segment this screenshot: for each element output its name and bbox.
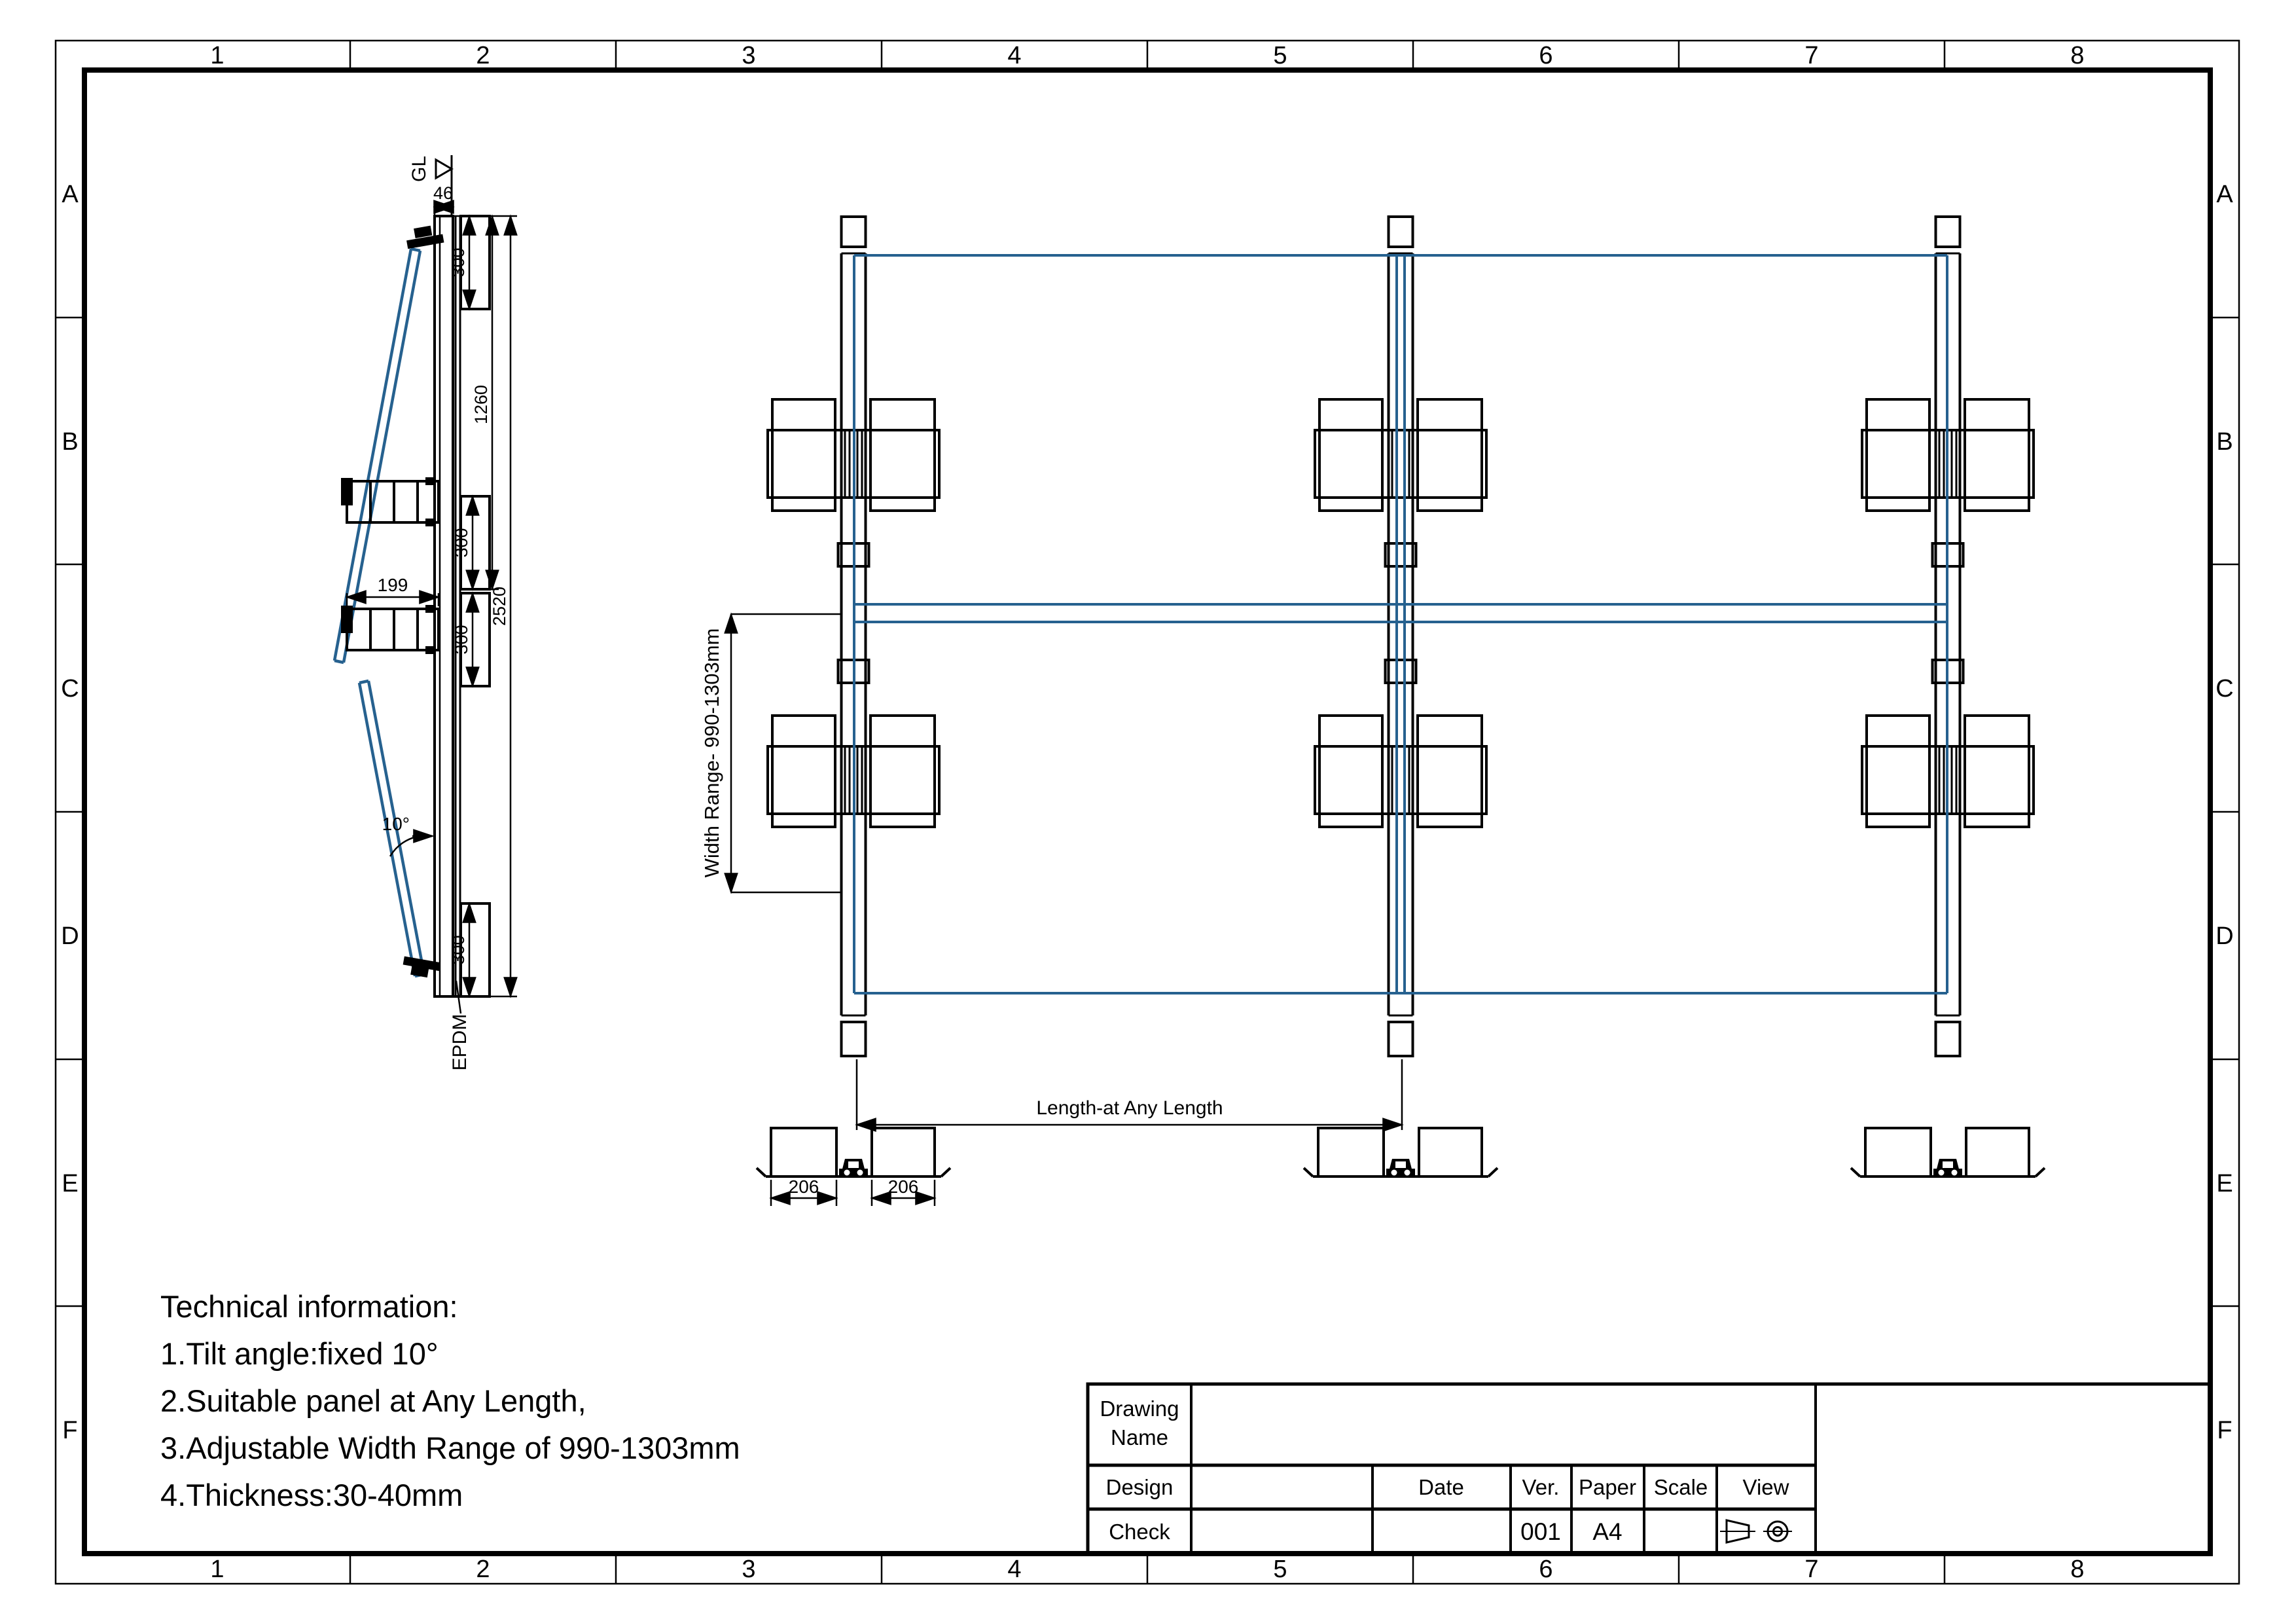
view-label: View bbox=[1743, 1475, 1789, 1499]
tech-info-line: 3.Adjustable Width Range of 990-1303mm bbox=[160, 1431, 740, 1465]
grid-row-label: E bbox=[62, 1170, 78, 1197]
paper-value: A4 bbox=[1592, 1518, 1622, 1545]
dim-199: 199 bbox=[378, 575, 408, 595]
grid-col-label: 6 bbox=[1539, 1556, 1552, 1583]
grid-col-label: 6 bbox=[1539, 42, 1552, 69]
grid-col-label: 4 bbox=[1007, 42, 1021, 69]
grid-col-label: 5 bbox=[1273, 42, 1287, 69]
support-bracket-lower bbox=[347, 609, 439, 650]
grid-row-label: F bbox=[2217, 1417, 2232, 1444]
tech-info-line: 4.Thickness:30-40mm bbox=[160, 1478, 463, 1512]
grid-col-label: 3 bbox=[742, 1556, 755, 1583]
grid-col-label: 2 bbox=[476, 42, 490, 69]
dim-46: 46 bbox=[433, 183, 453, 203]
tech-info-title: Technical information: bbox=[160, 1289, 458, 1324]
dim-206: 206 bbox=[789, 1176, 819, 1197]
grid-row-label: F bbox=[62, 1417, 77, 1444]
grid-col-label: 1 bbox=[210, 42, 224, 69]
technical-information: Technical information: 1.Tilt angle:fixe… bbox=[160, 1289, 740, 1512]
grid-col-label: 3 bbox=[742, 42, 755, 69]
grid-row-label: A bbox=[2216, 181, 2233, 208]
grid-col-label: 5 bbox=[1273, 1556, 1287, 1583]
paper-label: Paper bbox=[1579, 1475, 1636, 1499]
cad-canvas: 1 2 3 4 5 6 7 8 1 2 3 4 5 6 7 8 A B C D … bbox=[0, 0, 2296, 1623]
width-range-label: Width Range- 990-1303mm bbox=[700, 629, 723, 878]
grid-row-label: E bbox=[2216, 1170, 2233, 1197]
scale-label: Scale bbox=[1654, 1475, 1708, 1499]
panel-clamp-hardware bbox=[341, 224, 444, 979]
grid-row-label: D bbox=[61, 922, 79, 950]
ground-level-marker-icon bbox=[436, 160, 452, 178]
grid-row-label: B bbox=[62, 428, 78, 456]
drawing-sheet: 1 2 3 4 5 6 7 8 1 2 3 4 5 6 7 8 A B C D … bbox=[0, 0, 2296, 1623]
clamp-detail-views: 206 206 bbox=[757, 1128, 2045, 1206]
grid-row-label: C bbox=[61, 675, 79, 702]
drawing-name-label: Drawing bbox=[1100, 1396, 1179, 1421]
grid-col-label: 7 bbox=[1804, 42, 1818, 69]
length-label: Length-at Any Length bbox=[1036, 1097, 1223, 1119]
drawing-name-label: Name bbox=[1111, 1425, 1168, 1450]
dim-300: 300 bbox=[448, 247, 468, 277]
gl-label: GL bbox=[408, 156, 430, 182]
grid-col-label: 1 bbox=[210, 1556, 224, 1583]
side-elevation-view: GL 46 bbox=[334, 155, 517, 1070]
title-block: Drawing Name Design Check Date Ver. Pape… bbox=[1088, 1384, 2210, 1554]
ver-value: 001 bbox=[1520, 1518, 1561, 1545]
grid-col-label: 8 bbox=[2070, 1556, 2084, 1583]
panel-outline-lines bbox=[854, 255, 1947, 993]
design-label: Design bbox=[1106, 1475, 1174, 1499]
grid-col-label: 8 bbox=[2070, 42, 2084, 69]
check-label: Check bbox=[1109, 1520, 1170, 1544]
ver-label: Ver. bbox=[1522, 1475, 1560, 1499]
width-range-dim-lines bbox=[731, 614, 842, 892]
date-label: Date bbox=[1418, 1475, 1464, 1499]
tech-info-line: 1.Tilt angle:fixed 10° bbox=[160, 1336, 439, 1371]
grid-row-label: D bbox=[2215, 922, 2233, 950]
grid-col-label: 4 bbox=[1007, 1556, 1021, 1583]
dim-206: 206 bbox=[888, 1176, 919, 1197]
tech-info-line: 2.Suitable panel at Any Length, bbox=[160, 1383, 586, 1418]
dim-300: 300 bbox=[448, 935, 468, 964]
length-dim-lines bbox=[857, 1059, 1402, 1130]
epdm-label: EPDM bbox=[449, 1014, 471, 1071]
grid-col-label: 7 bbox=[1804, 1556, 1818, 1583]
dim-300: 300 bbox=[452, 528, 471, 557]
dim-1260: 1260 bbox=[471, 385, 491, 424]
grid-row-label: B bbox=[2216, 428, 2233, 456]
grid-row-label: C bbox=[2215, 675, 2233, 702]
dim-angle-10: 10° bbox=[382, 814, 410, 834]
dim-300: 300 bbox=[452, 625, 471, 654]
grid-col-label: 2 bbox=[476, 1556, 490, 1583]
plan-view: Width Range- 990-1303mm Length-at Any Le… bbox=[700, 217, 2034, 1130]
projection-symbol-icon bbox=[1720, 1520, 1792, 1542]
grid-row-label: A bbox=[62, 181, 79, 208]
dim-2520: 2520 bbox=[490, 587, 509, 626]
